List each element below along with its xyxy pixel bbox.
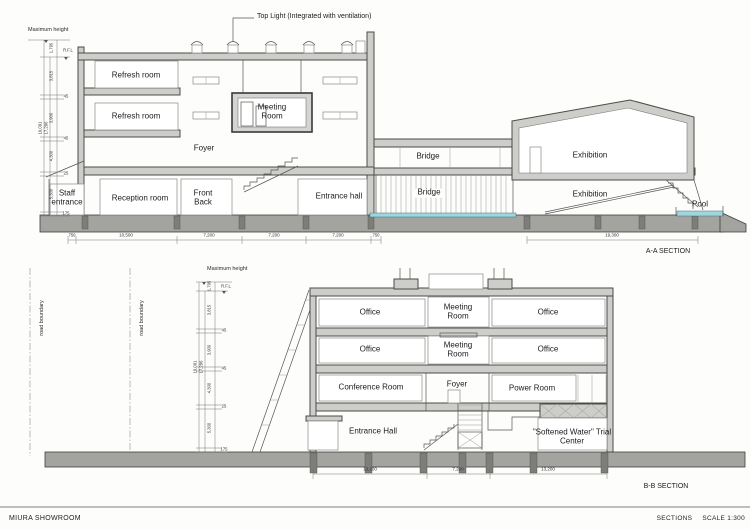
- aa-bottom-dim: 750: [69, 234, 76, 239]
- aa-dim-seg: 1,795: [50, 43, 55, 53]
- bb-room-foyer: Foyer: [447, 381, 467, 390]
- aa-room-foyer: Foyer: [194, 145, 214, 154]
- aa-room-refresh-1: Refresh room: [112, 72, 160, 81]
- bb-dim-seg: 25: [222, 405, 227, 410]
- bb-room-office-2f-right: Office: [538, 346, 559, 355]
- aa-room-meeting: Meeting Room: [249, 103, 295, 120]
- aa-bottom-dim: 7,200: [268, 234, 279, 239]
- bb-dim-seg: 3,815: [208, 305, 213, 315]
- bb-dim-seg: 5,300: [208, 423, 213, 433]
- aa-ground: [40, 215, 723, 232]
- aa-dim-seg: 3,815: [50, 71, 55, 81]
- bb-bottom-dim: 13,200: [363, 468, 377, 473]
- bb-road-boundary-left: road boundary: [40, 300, 46, 335]
- bb-dim-seg: 45: [222, 367, 227, 372]
- bb-dim-seg: 175: [221, 448, 228, 453]
- aa-bridge-water: [370, 213, 516, 217]
- aa-pool-water: [677, 211, 723, 216]
- aa-room-bridge-upper: Bridge: [416, 153, 439, 162]
- aa-dim-seg: 3,900: [50, 113, 55, 123]
- aa-dim-overall: 17,296: [45, 122, 50, 135]
- bb-road-boundary-right: road boundary: [140, 300, 146, 335]
- aa-bottom-dim: 750: [373, 234, 380, 239]
- aa-room-back: Back: [194, 199, 212, 208]
- aa-room-bridge-lower: Bridge: [415, 189, 442, 198]
- aa-room-staff-entrance: Staff entrance: [46, 189, 88, 206]
- aa-bottom-dims: [68, 236, 698, 244]
- aa-bottom-dim: 7,200: [332, 234, 343, 239]
- aa-dim-seg: 45: [64, 137, 69, 142]
- aa-bottom-dim: 7,200: [203, 234, 214, 239]
- aa-dim-overall: 19,091: [39, 122, 44, 135]
- sheet-scale: SCALE 1:300: [702, 515, 745, 522]
- aa-dim-seg: 25: [64, 172, 69, 177]
- bb-room-office-3f-right: Office: [538, 309, 559, 318]
- bb-room-conference: Conference Room: [339, 384, 404, 393]
- bb-dim-seg: 1,795: [208, 281, 213, 291]
- aa-max-height-label: Maximum height: [28, 28, 68, 34]
- aa-dim-seg: 175: [63, 212, 70, 217]
- bb-room-entrance-hall: Entrance Hall: [349, 428, 397, 437]
- bb-room-office-2f-left: Office: [360, 346, 381, 355]
- aa-rfl-label: R.F.L: [63, 49, 73, 54]
- aa-room-exhibition-lower: Exhibition: [573, 191, 608, 200]
- aa-exhibition: [512, 100, 703, 214]
- aa-room-refresh-2: Refresh room: [112, 113, 160, 122]
- aa-bottom-dim: 10,500: [119, 234, 133, 239]
- bb-dim-seg: 4,300: [208, 383, 213, 393]
- bb-dim-seg: 3,900: [208, 345, 213, 355]
- aa-section-title: A-A SECTION: [646, 248, 690, 256]
- sheet-title-block: SECTIONS SCALE 1:300: [657, 515, 745, 522]
- aa-dim-seg: 4,300: [50, 151, 55, 161]
- bb-room-power: Power Room: [509, 385, 555, 394]
- aa-room-reception: Reception room: [112, 195, 168, 204]
- bb-room-meeting-2f: Meeting Room: [435, 341, 481, 358]
- bb-section-title: B-B SECTION: [644, 483, 689, 491]
- aa-room-entrance-hall: Entrance hall: [316, 193, 363, 202]
- bb-bottom-dim: 13,200: [541, 468, 555, 473]
- aa-top-light-leader: [233, 18, 254, 42]
- aa-bridge-louvers: [370, 147, 516, 217]
- aa-room-exhibition-upper: Exhibition: [573, 152, 608, 161]
- aa-exhibition-dim: 19,300: [605, 234, 619, 239]
- bb-sloped-brace: [252, 290, 317, 452]
- bb-room-office-3f-left: Office: [360, 309, 381, 318]
- aa-room-pool: Pool: [692, 201, 708, 210]
- project-title: MIURA SHOWROOM: [9, 515, 81, 523]
- bb-rooftop-units: [394, 268, 512, 289]
- bb-dim-seg: 45: [222, 329, 227, 334]
- bb-room-softened-water: "Softened Water" Trial Center: [529, 428, 615, 445]
- drawing-sheet: Top Light (Integrated with ventilation) …: [0, 0, 750, 530]
- bb-rfl-label: R.F.L: [221, 285, 231, 290]
- top-light-annotation: Top Light (Integrated with ventilation): [257, 13, 371, 21]
- bb-bottom-dim: 7,200: [452, 468, 463, 473]
- aa-drawing: [28, 18, 746, 244]
- sheet-title: SECTIONS: [657, 515, 693, 522]
- bb-max-height-label: Maximum height: [207, 267, 247, 273]
- bb-room-meeting-3f: Meeting Room: [435, 303, 481, 320]
- bb-dim-overall: 17,296: [200, 361, 205, 374]
- bb-drawing: [30, 268, 745, 479]
- aa-dim-seg: 45: [64, 95, 69, 100]
- aa-meeting-box: [232, 60, 312, 132]
- bb-dim-overall: 19,091: [194, 361, 199, 374]
- aa-top-lights: [191, 41, 365, 53]
- bb-ground: [45, 452, 745, 467]
